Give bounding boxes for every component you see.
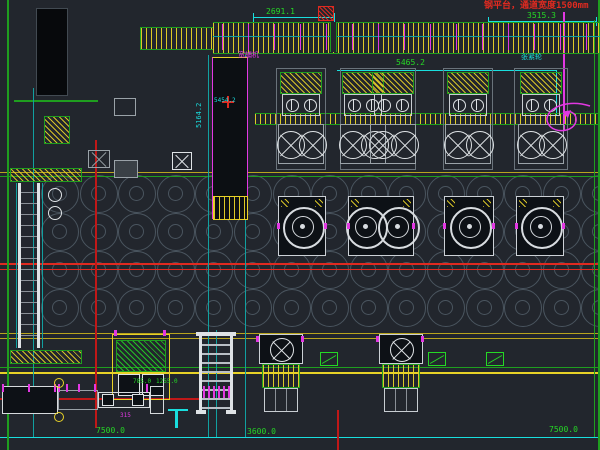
coil-circle-inner — [91, 300, 106, 315]
bearing-circle — [453, 99, 466, 112]
ladder-rung — [21, 225, 37, 226]
conveyor-tick — [326, 24, 327, 50]
coil-circle — [388, 289, 426, 327]
base-line — [395, 389, 396, 411]
coil-car-hatch — [116, 340, 166, 372]
line — [0, 176, 600, 177]
coil-circle — [234, 289, 272, 327]
corner-hatch — [447, 199, 455, 207]
ladder2-tick — [203, 386, 205, 398]
coil-circle — [157, 175, 195, 213]
drawing-canvas[interactable]: 钢平台，通道宽度1500mm 3515.3 2691.1 5465.2 张紧轮 … — [0, 0, 600, 450]
housing-tick — [562, 223, 565, 229]
drive-center-dot — [467, 224, 472, 229]
small-roller — [48, 188, 62, 202]
coil-circle-inner — [477, 300, 492, 315]
ladder2-rail — [199, 336, 202, 414]
coil-circle — [41, 213, 79, 251]
coil-circle-inner — [168, 300, 183, 315]
bearing-circle — [471, 99, 484, 112]
coil-circle-inner — [284, 300, 299, 315]
small-dim-a: 785.0 — [133, 379, 151, 385]
bearing-line — [401, 99, 402, 110]
conveyor-tick — [222, 24, 223, 50]
conveyor-tick — [248, 24, 249, 50]
coil-circle — [466, 289, 504, 327]
coil-circle — [157, 289, 195, 327]
line — [594, 20, 595, 437]
conveyor-tick — [274, 24, 275, 50]
drive-housing — [278, 196, 326, 256]
conveyor-tick — [560, 24, 561, 50]
line — [334, 13, 335, 22]
ladder-rung — [21, 192, 37, 193]
housing-tick — [515, 223, 518, 229]
dim-conveyor-inner: 5454.2 — [214, 98, 236, 104]
coil-circle-inner — [515, 300, 530, 315]
coil-circle — [80, 251, 118, 289]
conveyor-tick — [300, 24, 301, 50]
dim-bottom-center: 3600.0 — [247, 428, 276, 436]
coil-circle — [41, 289, 79, 327]
coil-circle — [311, 251, 349, 289]
line — [7, 0, 9, 450]
line — [0, 269, 600, 270]
drive-housing — [516, 196, 564, 256]
housing-tick — [347, 223, 350, 229]
coil-circle — [273, 251, 311, 289]
bottom-unit-hatch — [262, 364, 300, 388]
coil-circle-inner — [52, 224, 67, 239]
ladder2-rung — [202, 344, 230, 346]
line — [0, 372, 600, 374]
coil-circle — [80, 289, 118, 327]
bl-block — [132, 394, 144, 406]
coil-circle — [427, 289, 465, 327]
bl-tick — [146, 384, 148, 392]
ladder2-rung — [202, 398, 230, 400]
ladder-rung — [21, 236, 37, 237]
ladder-rung — [21, 335, 37, 336]
housing-tick — [492, 223, 495, 229]
housing-tick — [277, 223, 280, 229]
corner-hatch — [351, 199, 359, 207]
housing-tick — [443, 223, 446, 229]
ladder2-rung — [202, 353, 230, 355]
ladder-rung — [21, 203, 37, 204]
coil-circle — [504, 289, 542, 327]
coil-circle-inner — [245, 300, 260, 315]
bearing-line — [458, 99, 459, 110]
housing-tick — [412, 223, 415, 229]
roller-circle — [270, 338, 294, 362]
dim-left-vertical: 5164.2 — [196, 103, 203, 128]
ladder2-tick — [218, 386, 220, 398]
green-fitting — [428, 352, 446, 366]
bearing-line — [353, 99, 354, 110]
ladder-rung — [21, 258, 37, 259]
coil-circle — [543, 289, 581, 327]
x-box — [172, 152, 192, 170]
coil-circle-inner — [554, 300, 569, 315]
coil-circle — [350, 251, 388, 289]
ladder2-foot — [196, 410, 206, 414]
coil-circle-inner — [91, 186, 106, 201]
unit-tick — [376, 336, 379, 342]
dim-mid-right: 5465.2 — [396, 59, 425, 67]
line — [14, 100, 98, 102]
coil-circle-inner — [399, 300, 414, 315]
conveyor-tick — [534, 24, 535, 50]
left-bar — [10, 168, 82, 182]
conveyor-tick — [482, 24, 483, 50]
left-bar — [10, 350, 82, 364]
coil-circle — [427, 251, 465, 289]
small-roller — [48, 206, 62, 220]
label-machine: 宽辅机 — [238, 52, 259, 59]
line — [0, 437, 600, 438]
coil-circle-inner — [361, 300, 376, 315]
roller-circle — [299, 131, 327, 159]
conveyor-tick — [378, 24, 379, 50]
coil-circle — [157, 213, 195, 251]
bl-tick — [78, 384, 80, 392]
red-fitting — [318, 6, 334, 21]
stand-hatch-top — [280, 72, 322, 94]
coil-circle — [118, 251, 156, 289]
conveyor-tick — [586, 24, 587, 50]
ladder-rail — [37, 183, 40, 348]
drive-center-dot — [363, 224, 368, 229]
line — [0, 263, 600, 265]
line — [0, 172, 600, 173]
conveyor-top-left — [140, 27, 214, 50]
dim-top-center: 2691.1 — [266, 8, 295, 16]
corner-hatch — [519, 199, 527, 207]
fitting-line — [322, 355, 336, 364]
roller-circle — [390, 338, 414, 362]
ladder2-tick — [223, 386, 225, 398]
conveyor-tick — [508, 24, 509, 50]
coil-circle — [311, 289, 349, 327]
bl-block — [102, 394, 114, 406]
small-box — [114, 98, 136, 116]
coil-circle-inner — [129, 186, 144, 201]
ladder2-rung — [202, 362, 230, 364]
conveyor-tick — [430, 24, 431, 50]
ladder2-rung — [202, 389, 230, 391]
corner-hatch — [553, 199, 561, 207]
bearing-circle — [348, 99, 361, 112]
ladder2-rung — [202, 407, 230, 409]
unit-tick — [256, 336, 259, 342]
coil-circle-inner — [245, 224, 260, 239]
roller-circle — [391, 131, 419, 159]
bearing-line — [309, 99, 310, 110]
conveyor-tick — [352, 24, 353, 50]
ladder2-rail — [230, 336, 233, 414]
leader-arrow — [538, 100, 594, 140]
bottom-unit-base — [264, 388, 298, 412]
coil-circle-inner — [168, 224, 183, 239]
conveyor-tick — [456, 24, 457, 50]
line — [33, 88, 34, 437]
ladder-rung — [21, 280, 37, 281]
coil-circle-inner — [52, 300, 67, 315]
bottom-unit-head — [259, 334, 303, 364]
base-line — [406, 389, 407, 411]
bottom-unit-hatch — [382, 364, 420, 388]
bearing-circle — [286, 99, 299, 112]
feed-conveyor — [212, 57, 248, 219]
drive-housing — [444, 196, 494, 256]
coil-circle — [195, 289, 233, 327]
line — [168, 409, 188, 411]
coil-circle — [234, 251, 272, 289]
ladder2-tick — [208, 386, 210, 398]
conveyor-tick — [404, 24, 405, 50]
bl-machine — [2, 386, 58, 414]
corner-hatch — [403, 199, 411, 207]
coil-circle — [350, 289, 388, 327]
bl-machine — [150, 386, 164, 414]
ladder-rung — [21, 291, 37, 292]
bl-wheel — [54, 412, 64, 422]
bl-tick — [2, 384, 4, 392]
corner-hatch — [281, 199, 289, 207]
coil-circle — [118, 289, 156, 327]
bl-wheel — [54, 378, 64, 388]
small-box — [114, 160, 138, 178]
ladder-rung — [21, 269, 37, 270]
building-block — [36, 8, 68, 96]
stand-hatch-top — [520, 72, 562, 94]
bl-tick — [66, 384, 68, 392]
stand-hatch-top — [372, 72, 414, 94]
coil-circle-inner — [129, 300, 144, 315]
car-tick — [114, 330, 117, 336]
coil-circle-inner — [129, 224, 144, 239]
dim-bottom-right: 7500.0 — [549, 426, 578, 434]
bearing-circle — [396, 99, 409, 112]
bearing-line — [383, 99, 384, 110]
car-tick — [163, 330, 166, 336]
coil-circle — [80, 213, 118, 251]
line — [0, 367, 600, 368]
housing-tick — [324, 223, 327, 229]
coil-circle — [80, 175, 118, 213]
unit-tick — [421, 336, 424, 342]
line — [337, 410, 339, 450]
conveyor-divider — [330, 22, 337, 52]
bl-machine — [58, 390, 98, 410]
corner-hatch — [315, 199, 323, 207]
bottom-unit-head — [379, 334, 423, 364]
fitting-line — [488, 355, 502, 364]
ladder-edge — [42, 183, 43, 348]
coil-circle — [118, 175, 156, 213]
ladder2-foot — [226, 410, 236, 414]
base-line — [286, 389, 287, 411]
ladder-rung — [21, 302, 37, 303]
unit-tick — [301, 336, 304, 342]
coil-circle — [273, 289, 311, 327]
ladder-rung — [21, 313, 37, 314]
line — [253, 13, 254, 22]
bl-tick — [28, 384, 30, 392]
coil-circle — [157, 251, 195, 289]
small-dim-315: 315 — [120, 413, 131, 419]
drive-housing — [348, 196, 414, 256]
dim-bottom-left: 7500.0 — [96, 427, 125, 435]
platform-note: 钢平台，通道宽度1500mm — [484, 2, 589, 11]
coil-circle-inner — [168, 186, 183, 201]
line — [216, 330, 217, 437]
roller-circle — [466, 131, 494, 159]
line — [598, 0, 600, 450]
ladder2-rung — [202, 380, 230, 382]
bl-tick — [94, 384, 96, 392]
coil-circle-inner — [438, 300, 453, 315]
dim-top-right: 3515.3 — [527, 12, 556, 20]
x-box — [88, 150, 110, 168]
drive-center-dot — [538, 224, 543, 229]
base-line — [275, 389, 276, 411]
bearing-line — [371, 99, 372, 110]
coil-circle — [118, 213, 156, 251]
coil-circle — [195, 251, 233, 289]
bearing-line — [476, 99, 477, 110]
bearing-circle — [378, 99, 391, 112]
bottom-unit-base — [384, 388, 418, 412]
small-dim-b: 1255.0 — [156, 379, 178, 385]
conveyor-centerline — [213, 36, 600, 37]
coil-circle — [466, 251, 504, 289]
ladder-rung — [21, 247, 37, 248]
bearing-line — [291, 99, 292, 110]
green-fitting — [320, 352, 338, 366]
green-fitting — [486, 352, 504, 366]
drive-center-dot — [395, 224, 400, 229]
hatched-box — [44, 116, 70, 144]
coil-circle-inner — [322, 300, 337, 315]
corner-hatch — [483, 199, 491, 207]
coil-circle — [504, 251, 542, 289]
coil-circle — [388, 251, 426, 289]
ladder2-rung — [202, 371, 230, 373]
stand-roll-box — [278, 124, 324, 164]
stand-hatch-top — [447, 72, 489, 94]
stand-roll-box — [445, 124, 491, 164]
ladder-rung — [21, 214, 37, 215]
ladder-edge — [16, 183, 17, 348]
stand-roll-box — [370, 124, 416, 164]
coil-circle-inner — [91, 224, 106, 239]
ladder2-tick — [213, 386, 215, 398]
conveyor-top-main — [213, 22, 600, 54]
ladder2-tick — [228, 386, 230, 398]
fitting-line — [430, 355, 444, 364]
line — [175, 409, 178, 428]
bearing-circle — [526, 99, 539, 112]
bearing-circle — [304, 99, 317, 112]
drive-center-dot — [300, 224, 305, 229]
feed-conveyor-end — [213, 196, 248, 220]
bearing-line — [531, 99, 532, 110]
coil-circle — [41, 251, 79, 289]
coil-circle — [543, 251, 581, 289]
ladder-rung — [21, 324, 37, 325]
label-tension-wheel: 张紧轮 — [521, 54, 542, 61]
